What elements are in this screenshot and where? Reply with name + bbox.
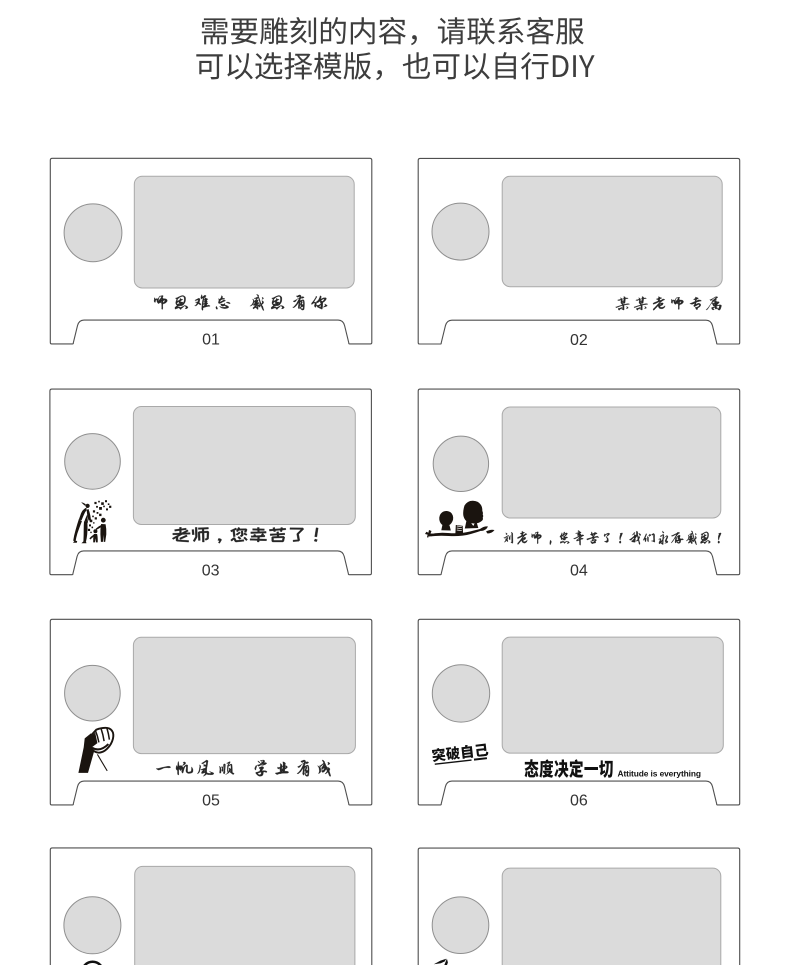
- svg-text:06: 06: [570, 793, 588, 810]
- svg-text:05: 05: [202, 793, 220, 810]
- svg-text:01: 01: [202, 332, 220, 349]
- svg-text:Attitude is everything: Attitude is everything: [618, 768, 701, 778]
- svg-text:02: 02: [570, 332, 588, 349]
- svg-text:04: 04: [570, 563, 588, 580]
- svg-text:03: 03: [202, 563, 220, 580]
